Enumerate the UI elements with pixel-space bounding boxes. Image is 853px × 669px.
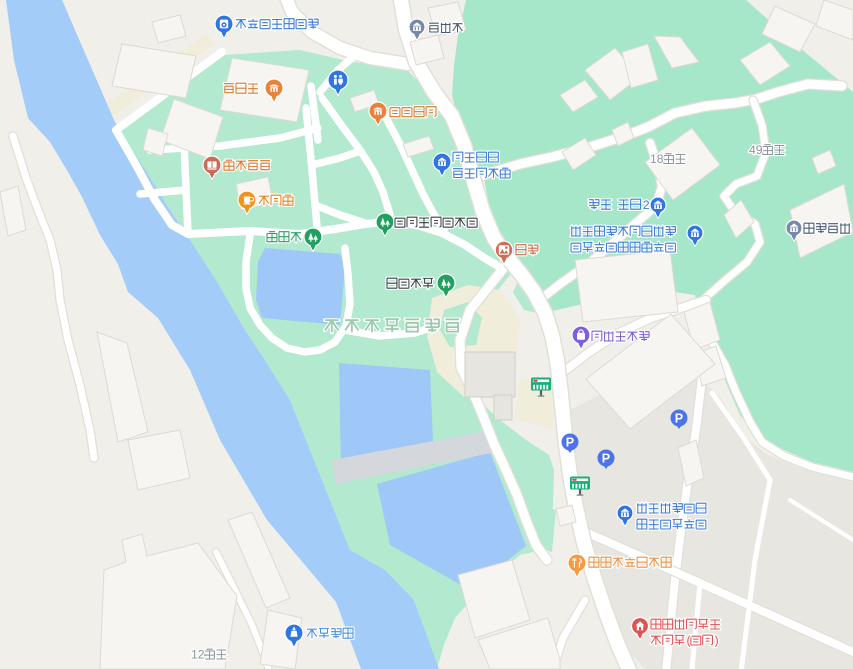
svg-text:9: 9 <box>756 143 763 157</box>
svg-text:2: 2 <box>198 648 205 662</box>
svg-text:P: P <box>602 452 610 466</box>
svg-text:(: ( <box>687 634 691 648</box>
svg-text:P: P <box>675 412 683 426</box>
svg-text:): ) <box>715 634 719 648</box>
svg-text:8: 8 <box>657 152 664 166</box>
svg-text:P: P <box>566 436 574 450</box>
svg-text:2: 2 <box>643 198 650 212</box>
